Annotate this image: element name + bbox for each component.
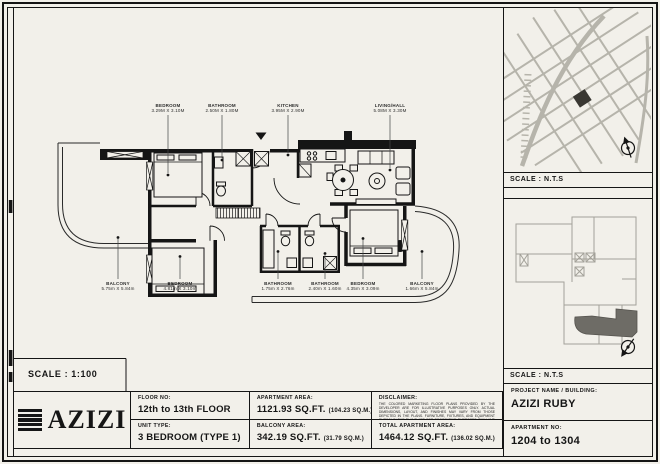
floor-no-value: 12th to 13th FLOOR bbox=[138, 404, 242, 415]
key-plan-drawing bbox=[504, 199, 651, 367]
apartment-area-label: APARTMENT AREA: bbox=[257, 395, 364, 401]
room-label-bedroom-2: BEDROOM 4.81m X 3.10m bbox=[163, 281, 196, 291]
room-label-bathroom-3: BATHROOM 2.40m X 1.60m bbox=[308, 281, 341, 291]
room-label-bedroom-1: BEDROOM 3.29M X 3.10M bbox=[151, 103, 184, 113]
north-arrow-icon bbox=[618, 135, 637, 160]
entry-marker-icon bbox=[256, 133, 267, 141]
key-plan-panel bbox=[504, 198, 652, 368]
area-cell: APARTMENT AREA: 1121.93 SQ.FT.(104.23 SQ… bbox=[249, 392, 371, 448]
total-area-value: 1464.12 SQ.FT. bbox=[379, 432, 448, 443]
azizi-logo-bars-icon bbox=[18, 409, 42, 431]
location-map-scale: SCALE : N.T.S bbox=[504, 172, 652, 188]
floor-no-field: FLOOR NO: 12th to 13th FLOOR bbox=[131, 392, 249, 420]
room-label-bathroom-2: BATHROOM 1.75m X 2.76m bbox=[261, 281, 294, 291]
apartment-no-panel: APARTMENT NO: 1204 to 1304 bbox=[504, 420, 652, 456]
disclaimer-field: DISCLAIMER: THE COLORED MARKETING FLOOR … bbox=[372, 392, 502, 420]
window-topleft bbox=[107, 152, 143, 159]
azizi-logo-text: AZIZI bbox=[48, 407, 127, 433]
total-area-field: TOTAL APARTMENT AREA: 1464.12 SQ.FT.(136… bbox=[372, 420, 502, 448]
key-plan-scale: SCALE : N.T.S bbox=[504, 368, 652, 383]
room-label-bathroom-1: BATHROOM 2.50M X 1.80M bbox=[205, 103, 238, 113]
bed-3 bbox=[350, 210, 398, 256]
room-label-balcony-left: BALCONY 5.75m X 5.84m bbox=[101, 281, 134, 291]
frame-margin-marks bbox=[9, 8, 14, 456]
balcony-area-field: BALCONY AREA: 342.19 SQ.FT.(31.79 SQ.M.) bbox=[250, 420, 371, 448]
room-label-balcony-right: BALCONY 1.66m X 5.84m bbox=[405, 281, 438, 291]
sofa-set bbox=[356, 151, 410, 205]
total-area-metric: (136.02 SQ.M.) bbox=[451, 436, 495, 442]
project-name-panel: PROJECT NAME / BUILDING: AZIZI RUBY bbox=[504, 383, 652, 420]
drawing-sheet: { "plan": { "scale_label": "SCALE : 1:10… bbox=[0, 0, 660, 464]
apartment-area-value: 1121.93 SQ.FT. bbox=[257, 404, 326, 415]
tv-console bbox=[356, 199, 396, 205]
total-area-label: TOTAL APARTMENT AREA: bbox=[379, 423, 495, 429]
room-label-kitchen: KITCHEN 3.95M X 2.90M bbox=[271, 103, 304, 113]
unit-type-field: UNIT TYPE: 3 BEDROOM (TYPE 1) bbox=[131, 420, 249, 448]
bathroom-1-fixtures bbox=[215, 152, 251, 197]
title-block: AZIZI FLOOR NO: 12th to 13th FLOOR UNIT … bbox=[13, 391, 503, 449]
plan-scale-label: SCALE : 1:100 bbox=[28, 369, 97, 379]
bathroom-2-fixtures bbox=[263, 230, 297, 268]
disclaimer-total-cell: DISCLAIMER: THE COLORED MARKETING FLOOR … bbox=[371, 392, 502, 448]
north-arrow-icon bbox=[616, 335, 639, 360]
unit-type-value: 3 BEDROOM (TYPE 1) bbox=[138, 432, 242, 443]
entry-closet bbox=[255, 152, 269, 167]
room-label-living-hall: LIVING/HALL 5.08M X 3.30M bbox=[373, 103, 406, 113]
dining-table bbox=[327, 165, 358, 196]
unit-type-label: UNIT TYPE: bbox=[138, 423, 242, 429]
location-map-panel bbox=[504, 8, 652, 172]
azizi-logo: AZIZI bbox=[14, 392, 130, 448]
balcony-area-label: BALCONY AREA: bbox=[257, 423, 364, 429]
floor-no-label: FLOOR NO: bbox=[138, 395, 242, 401]
room-label-bedroom-3: BEDROOM 4.35m X 3.09m bbox=[346, 281, 379, 291]
unit-highlight bbox=[575, 309, 637, 337]
project-name-label: PROJECT NAME / BUILDING: bbox=[511, 388, 645, 394]
bathroom-3-fixtures bbox=[303, 231, 337, 270]
location-map-drawing bbox=[504, 8, 651, 172]
apartment-no-value: 1204 to 1304 bbox=[511, 435, 645, 447]
balcony-area-value: 342.19 SQ.FT. bbox=[257, 432, 321, 443]
side-column: SCALE : N.T.S SCALE : N.T.S PROJECT NAME… bbox=[503, 8, 652, 456]
disclaimer-text: THE COLORED MARKETING FLOOR PLANS PROVID… bbox=[379, 402, 495, 420]
apartment-no-label: APARTMENT NO: bbox=[511, 425, 645, 431]
apartment-area-metric: (104.23 SQ.M.) bbox=[329, 408, 371, 414]
balcony-area-metric: (31.79 SQ.M.) bbox=[324, 436, 364, 442]
bed-1 bbox=[154, 153, 202, 197]
floor-unit-cell: FLOOR NO: 12th to 13th FLOOR UNIT TYPE: … bbox=[130, 392, 249, 448]
project-name-value: AZIZI RUBY bbox=[511, 398, 645, 410]
apartment-area-field: APARTMENT AREA: 1121.93 SQ.FT.(104.23 SQ… bbox=[250, 392, 371, 420]
disclaimer-label: DISCLAIMER: bbox=[379, 395, 495, 401]
